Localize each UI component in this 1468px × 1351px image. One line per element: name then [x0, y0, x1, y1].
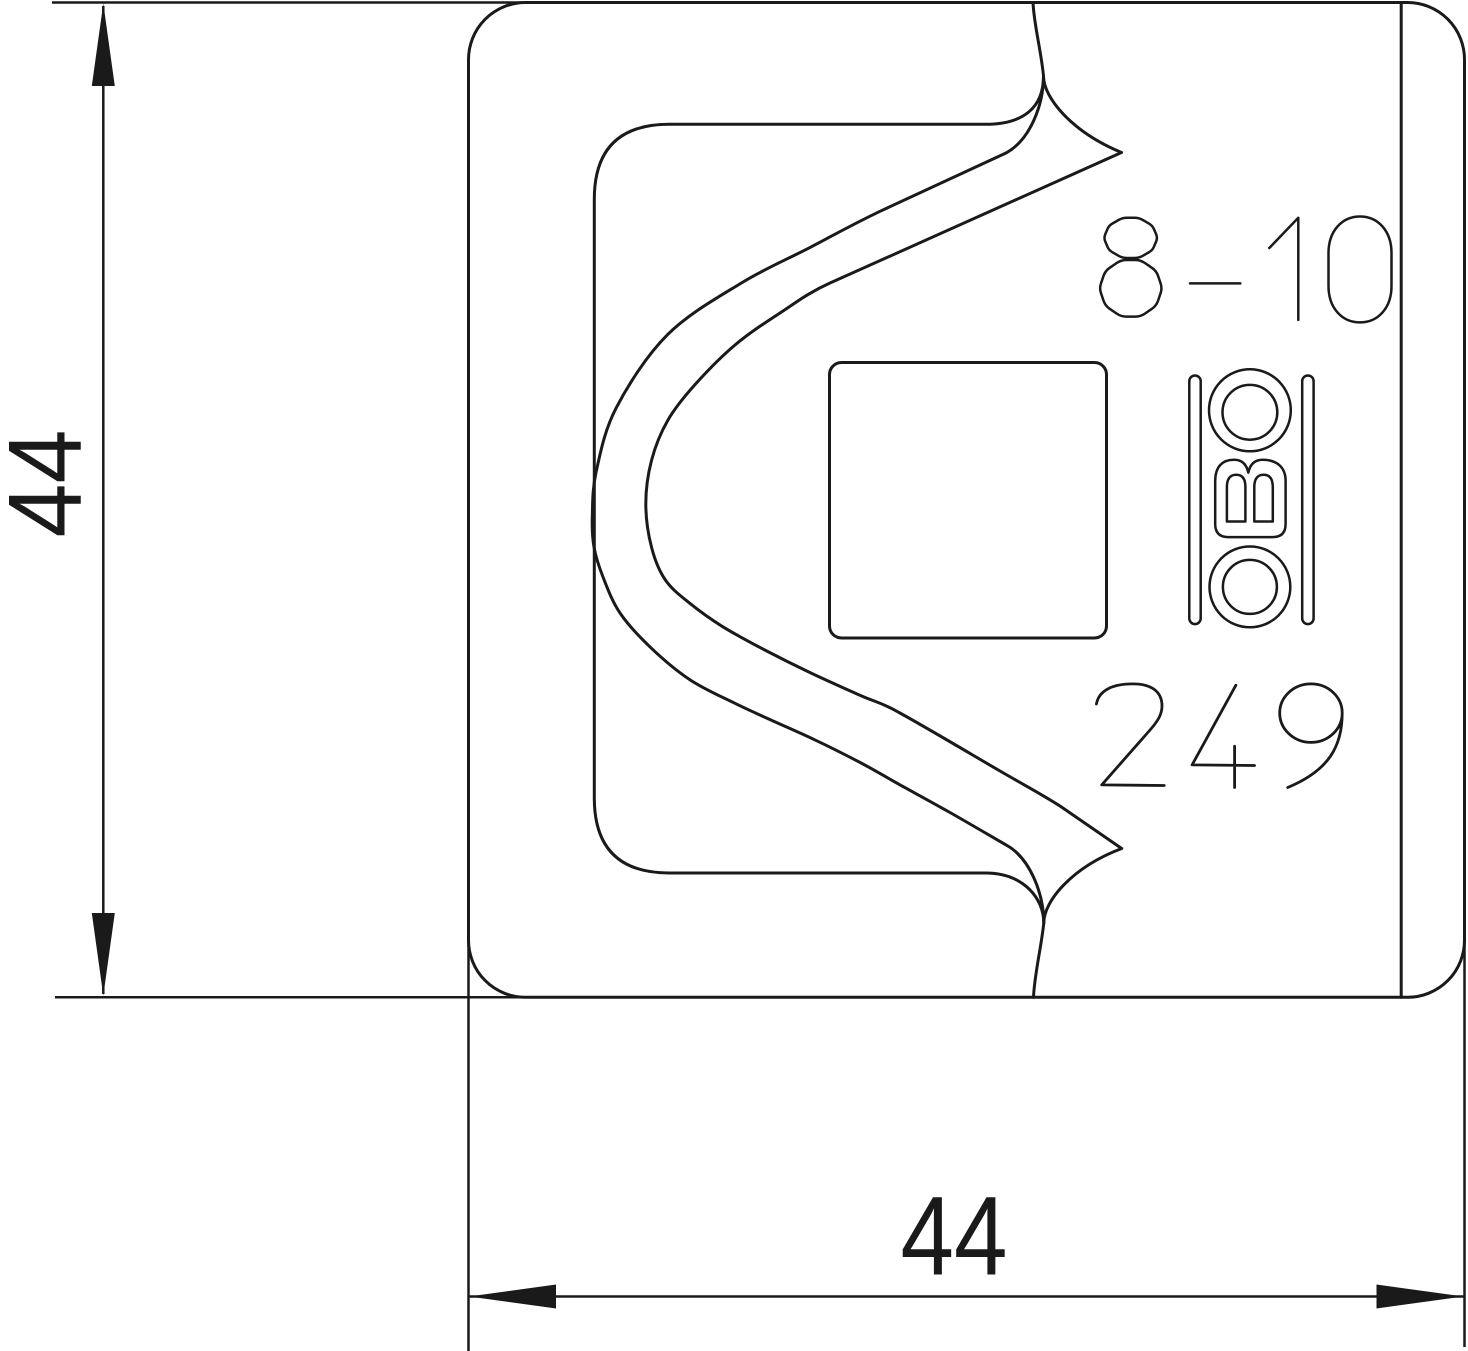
svg-text:44: 44 — [901, 1174, 1008, 1299]
svg-text:44: 44 — [0, 430, 104, 538]
